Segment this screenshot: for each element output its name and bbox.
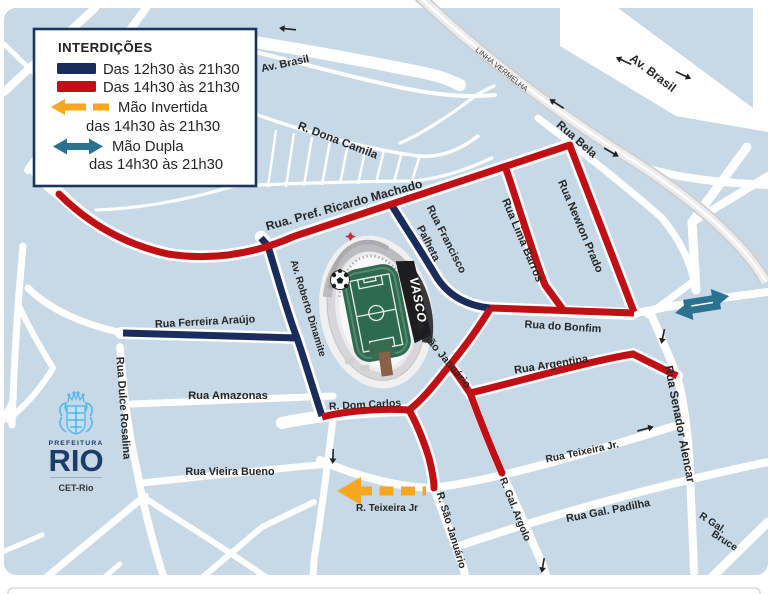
svg-text:RIO: RIO bbox=[48, 443, 103, 478]
svg-text:Mão Invertida: Mão Invertida bbox=[118, 100, 208, 116]
svg-text:CET-Rio: CET-Rio bbox=[59, 483, 95, 493]
svg-text:das 14h30 às 21h30: das 14h30 às 21h30 bbox=[89, 157, 223, 173]
svg-text:Rua Vieira Bueno: Rua Vieira Bueno bbox=[185, 466, 275, 478]
svg-text:Mão Dupla: Mão Dupla bbox=[112, 139, 184, 155]
svg-text:Das 14h30 às 21h30: Das 14h30 às 21h30 bbox=[103, 80, 240, 96]
svg-text:INTERDIÇÕES: INTERDIÇÕES bbox=[58, 40, 153, 55]
svg-text:R. Teixeira Jr: R. Teixeira Jr bbox=[356, 503, 418, 514]
svg-text:das 14h30 às 21h30: das 14h30 às 21h30 bbox=[86, 119, 220, 135]
svg-text:Rua Amazonas: Rua Amazonas bbox=[188, 390, 268, 402]
svg-text:Das 12h30 às 21h30: Das 12h30 às 21h30 bbox=[103, 62, 240, 78]
